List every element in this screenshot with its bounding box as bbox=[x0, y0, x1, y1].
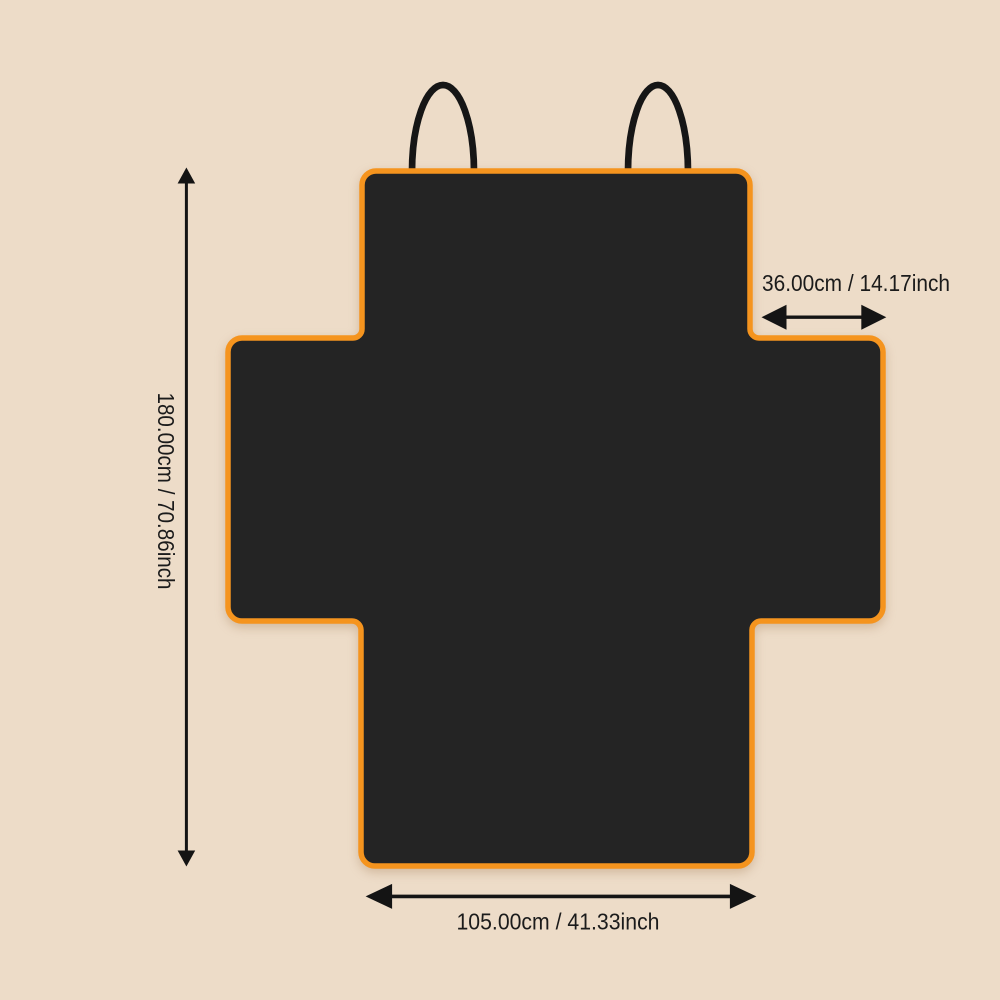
svg-text:180.00cm / 70.86inch: 180.00cm / 70.86inch bbox=[153, 393, 179, 590]
svg-text:36.00cm / 14.17inch: 36.00cm / 14.17inch bbox=[762, 270, 950, 296]
svg-text:105.00cm / 41.33inch: 105.00cm / 41.33inch bbox=[457, 909, 660, 935]
